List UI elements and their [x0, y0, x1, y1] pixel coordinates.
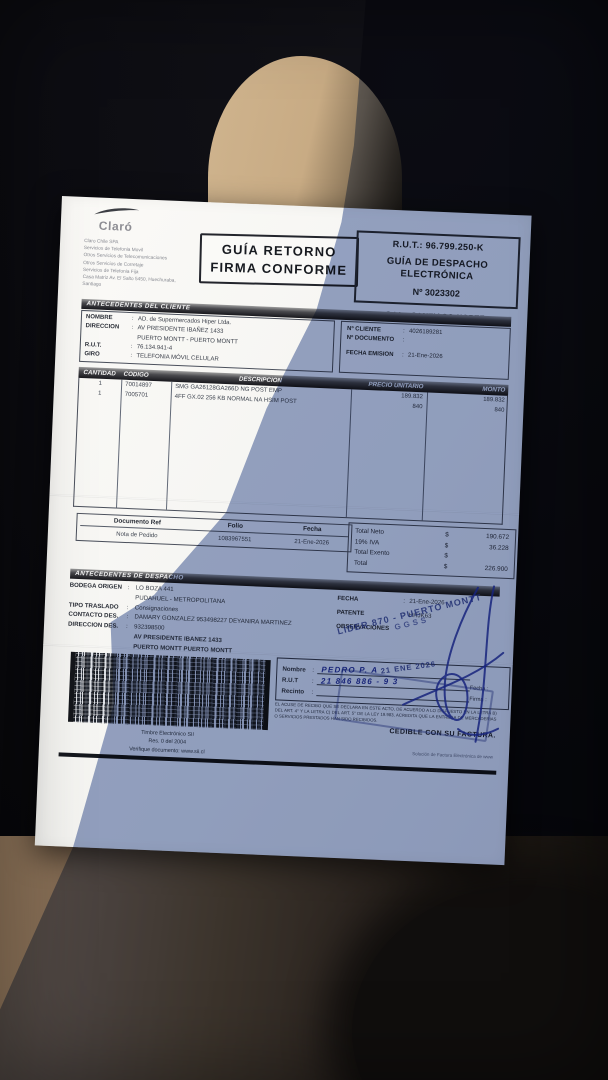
brand-name: Claró — [99, 219, 198, 237]
return-stamp-line2: FIRMA CONFORME — [210, 259, 347, 281]
supplier-rut: R.U.T.: 96.799.250-K — [361, 238, 515, 254]
car-seat-headrest — [208, 56, 402, 226]
items-table-body: 1 70014897 SMG GA26128GA266D NG POST EMP… — [73, 378, 508, 525]
ref-fecha-value: 21-Ene-2026 — [276, 537, 348, 549]
client-numbers-box: Nº CLIENTE4026189281 Nº DOCUMENTO FECHA … — [339, 321, 511, 381]
client-business-label: GIRO — [84, 350, 130, 361]
ref-doc-value: Nota de Pedido — [80, 529, 194, 543]
ref-folio-value: 1083967551 — [194, 534, 276, 546]
dispatch-guide-document: Claró Claro Chile SPA Servicios de Telef… — [35, 196, 532, 865]
sii-stamp-block: Timbre Electrónico SII Res. 0 del 2004 V… — [67, 652, 271, 759]
photo-of-dispatch-document: Claró Claro Chile SPA Servicios de Telef… — [0, 0, 608, 1080]
handwritten-signature — [387, 576, 514, 751]
return-signature-stamp: GUÍA RETORNO FIRMA CONFORME — [199, 233, 359, 287]
document-number: Nº 3023302 — [359, 284, 513, 300]
pdf417-barcode — [68, 652, 271, 730]
supplier-logo-block: Claró Claro Chile SPA Servicios de Telef… — [82, 205, 197, 293]
client-details-box: NOMBREAD. de Supermercados Hiper Ltda. D… — [79, 310, 335, 373]
supplier-info-lines: Claro Chile SPA Servicios de Telefonia M… — [82, 238, 196, 293]
receiver-rut-label: R.U.T — [282, 677, 312, 685]
document-number-label: Nº DOCUMENTO — [346, 334, 402, 345]
totals-box: Total Neto$190.672 19% IVA$36.228 Total … — [346, 522, 516, 579]
receiver-name-label: Nombre — [282, 666, 312, 674]
rut-box: R.U.T.: 96.799.250-K GUÍA DE DESPACHO EL… — [354, 230, 521, 309]
receiver-site-label: Recinto — [281, 688, 311, 696]
reference-document-box: Documento Ref Folio Fecha Nota de Pedido… — [76, 513, 353, 553]
ref-folio-label: Folio — [194, 521, 276, 531]
items-table: CANTIDAD CODIGO DESCRIPCION PRECIO UNITA… — [73, 367, 508, 525]
issue-date-label: FECHA EMISION — [346, 349, 402, 360]
tax-document-header: R.U.T.: 96.799.250-K GUÍA DE DESPACHO EL… — [353, 230, 520, 324]
claro-swoosh-icon — [93, 205, 141, 218]
issue-date: 21-Ene-2026 — [408, 352, 504, 365]
ref-fecha-label: Fecha — [276, 524, 348, 534]
